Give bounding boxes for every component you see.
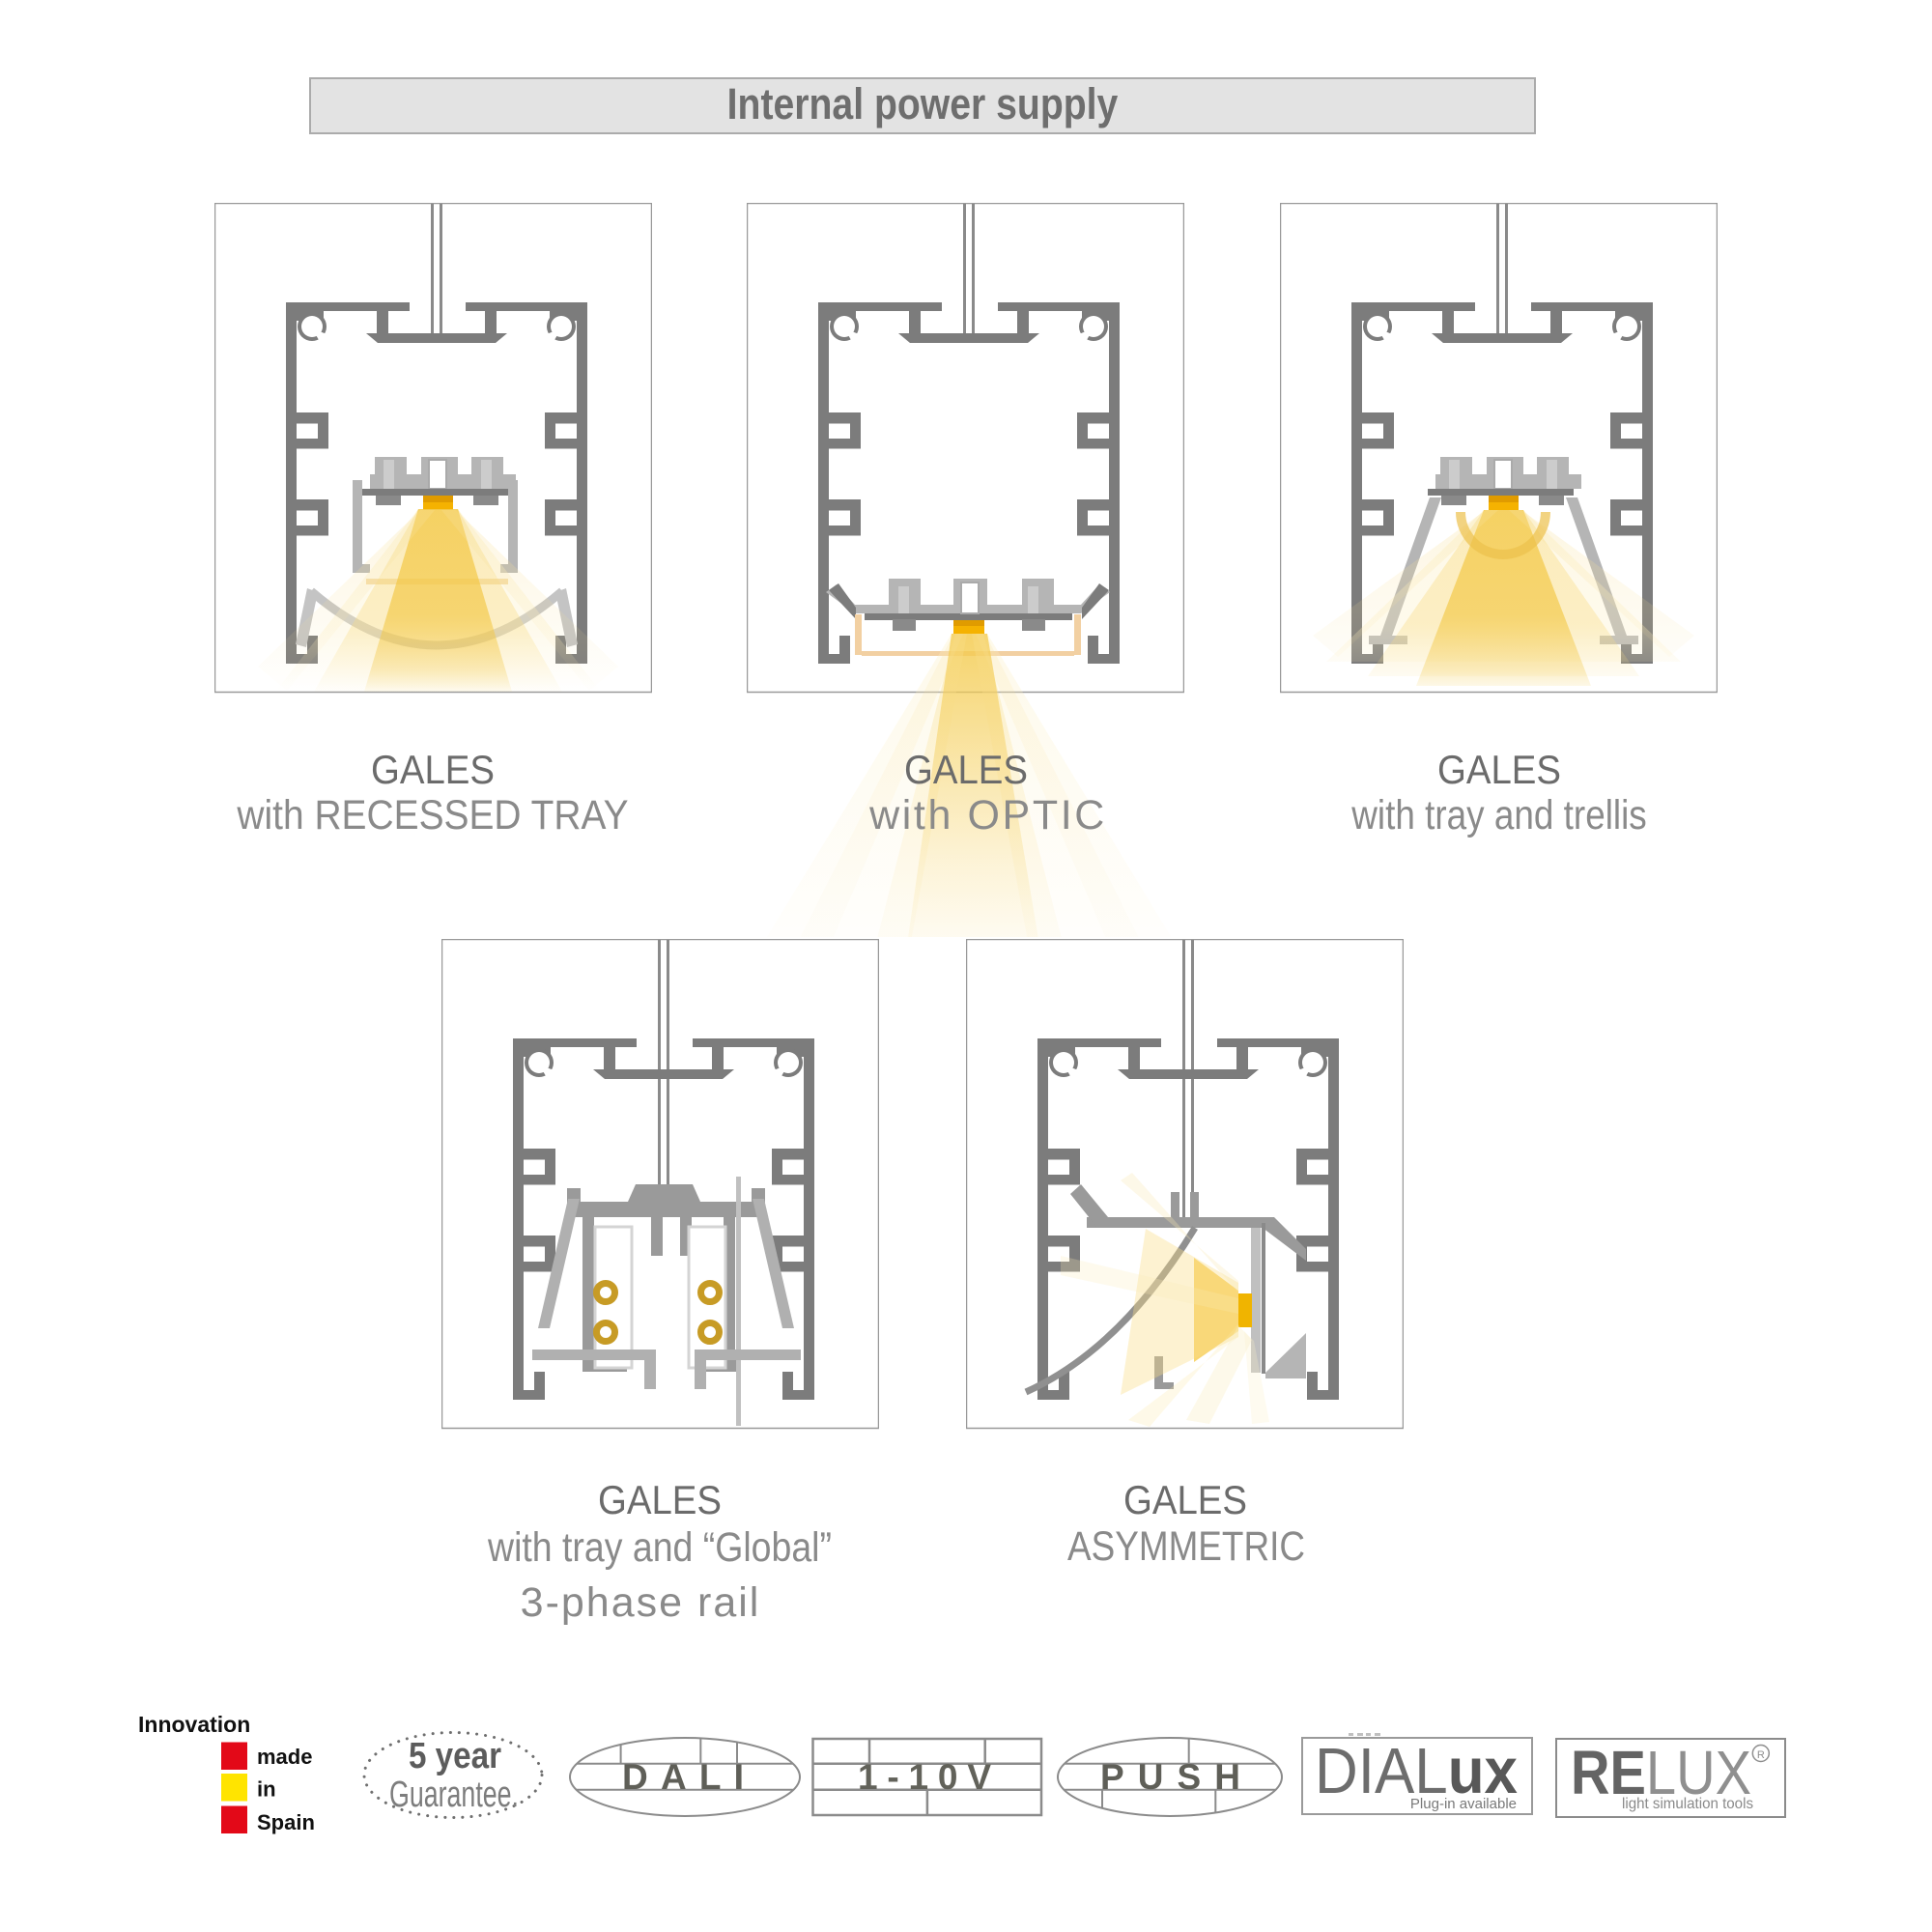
svg-text:Plug-in available: Plug-in available xyxy=(1410,1796,1517,1812)
svg-text:light simulation tools: light simulation tools xyxy=(1622,1796,1753,1812)
svg-text:Innovation: Innovation xyxy=(138,1712,250,1737)
svg-text:Guarantee.: Guarantee. xyxy=(389,1775,519,1815)
svg-text:made: made xyxy=(257,1745,312,1769)
svg-text:R: R xyxy=(1757,1749,1765,1761)
svg-text:Spain: Spain xyxy=(257,1810,315,1834)
svg-text:in: in xyxy=(257,1777,276,1802)
svg-text:5 year: 5 year xyxy=(409,1736,501,1776)
